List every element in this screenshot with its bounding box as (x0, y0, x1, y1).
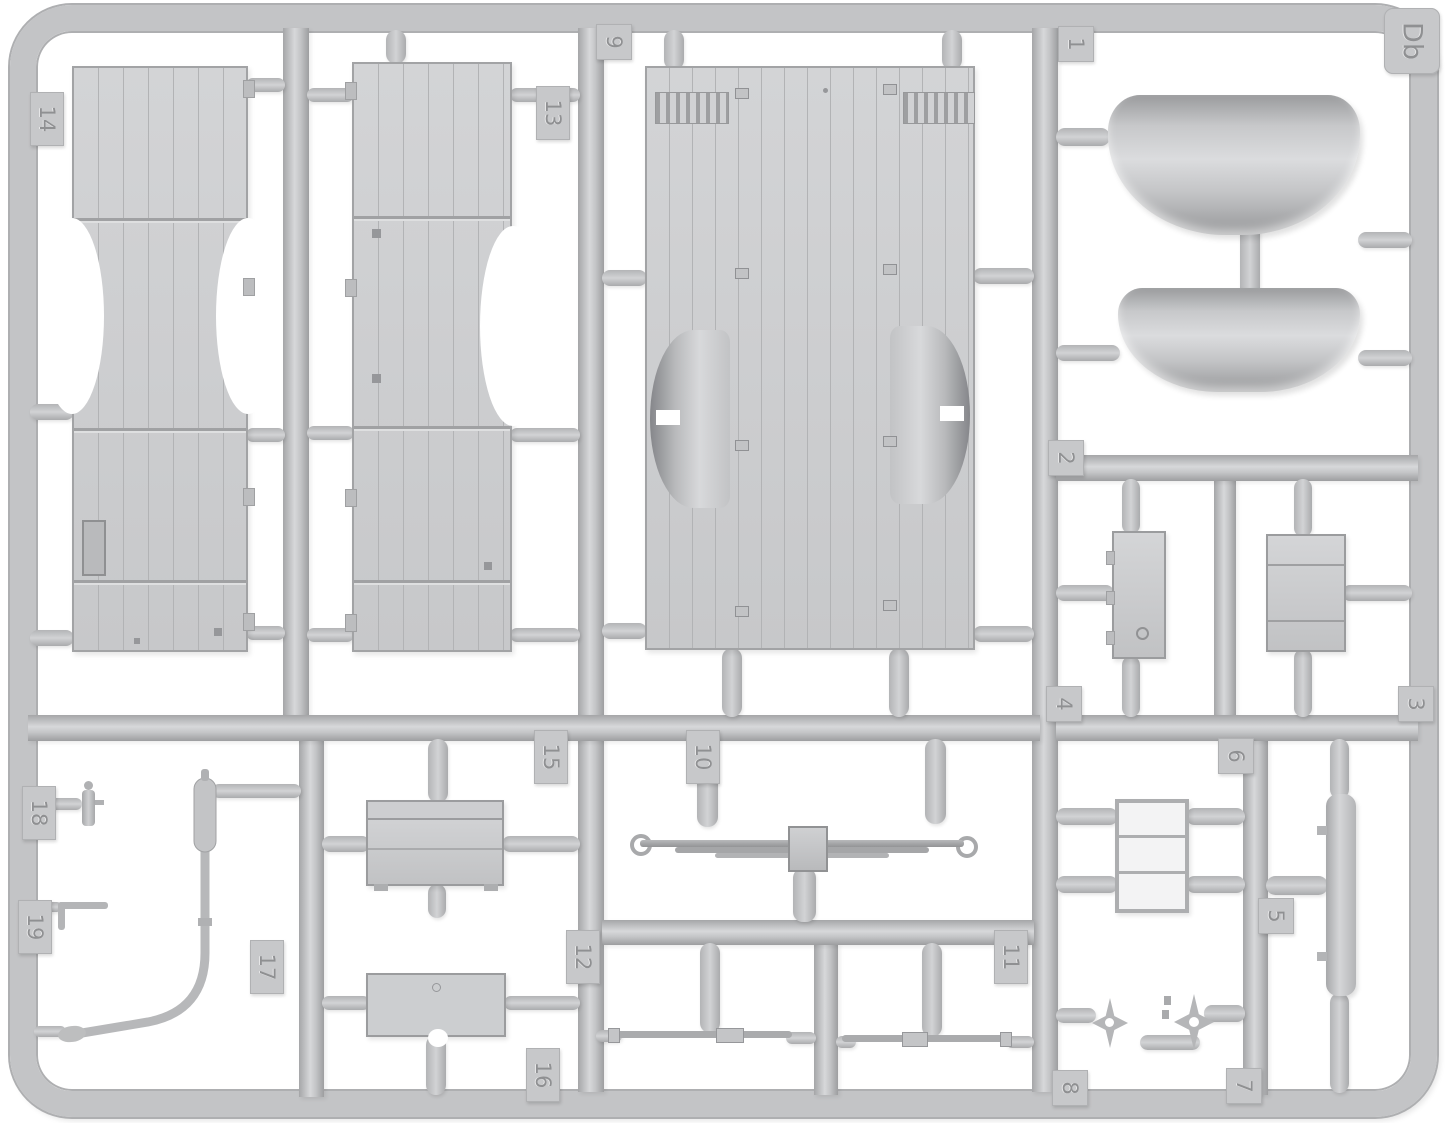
latch-plate (82, 520, 106, 576)
pipe-tip (57, 1024, 87, 1044)
sprue-gate (1056, 128, 1110, 146)
part-9-wooden-floor-panel (645, 66, 975, 650)
rod-end (1000, 1032, 1012, 1047)
hinge-bump (1106, 551, 1115, 565)
sprue-gate (386, 30, 406, 64)
sprue-gate (30, 630, 74, 646)
sprue-gate (1056, 345, 1120, 361)
hinge-tab (345, 82, 357, 100)
wheel-arch-part (650, 330, 730, 508)
hole-detail (484, 562, 492, 570)
part-number-tag-11: 11 (994, 930, 1028, 984)
plank-seam (354, 216, 510, 219)
sprue-gate (602, 623, 647, 639)
ladder-rung (1119, 835, 1185, 838)
runner-horizontal-4 (602, 920, 1034, 945)
part-14-wooden-side-panel (72, 66, 248, 652)
sprue-gate (1294, 479, 1312, 537)
part-number-tag-1: 1 (1058, 26, 1094, 62)
clip-detail (883, 600, 897, 611)
bracket-pin (1164, 996, 1171, 1005)
part-number-tag-4: 4 (1046, 686, 1082, 722)
runner-vertical-5 (814, 943, 838, 1095)
runner-horizontal-2 (1056, 455, 1418, 481)
runner-vertical-7 (1214, 479, 1236, 717)
arch-slot (656, 410, 680, 425)
part-number-tag-8: 8 (1052, 1070, 1088, 1106)
clip-detail (735, 440, 749, 451)
plank-seam (354, 580, 510, 583)
part-17-exhaust-pipe (40, 768, 310, 1058)
part-number-tag-19: 19 (18, 900, 52, 954)
sprue-photo: Db 1 2 3 4 5 6 7 8 9 10 11 12 13 14 15 1… (0, 0, 1445, 1123)
sprue-gate (889, 648, 909, 717)
sprue-gate (428, 884, 446, 918)
plank-line (1268, 620, 1344, 622)
sprue-letter: Db (1397, 22, 1428, 60)
plank-seam (74, 428, 246, 431)
sprue-gate (1330, 993, 1349, 1093)
part-number-tag-13: 13 (536, 86, 570, 140)
part-number-tag-2: 2 (1048, 440, 1084, 476)
wheel-arch-cutout (216, 218, 280, 414)
sprue-gate (1358, 232, 1412, 248)
clip-detail (883, 436, 897, 447)
sprue-gate (973, 626, 1034, 642)
sprue-gate (1056, 1008, 1096, 1023)
part-15-tool-box (366, 800, 504, 886)
box-rib (368, 848, 502, 850)
sprue-gate (1056, 808, 1118, 825)
sprue-gate (1358, 350, 1412, 366)
pipe-tube (76, 786, 205, 1034)
hinge-tab (243, 488, 255, 506)
part-13-wooden-side-panel (352, 62, 512, 652)
sprue-gate (510, 628, 580, 642)
bracket-hole (1189, 1017, 1199, 1027)
bolt-detail (823, 88, 828, 93)
plank-seam (74, 580, 246, 583)
part-12-tie-rod (608, 1028, 792, 1042)
pipe-bracket (198, 918, 212, 926)
ladder-rung (1119, 871, 1185, 874)
part-number-tag-6: 6 (1218, 738, 1254, 774)
clip-detail (735, 268, 749, 279)
sprue-gate (1330, 739, 1349, 799)
sprue-gate (700, 943, 720, 1033)
plank-seam (354, 426, 510, 429)
sprue-gate (246, 428, 285, 442)
mount-tab (1317, 826, 1327, 835)
part-number-tag-9: 9 (596, 24, 632, 60)
sprue-gate (428, 739, 448, 803)
sprue-gate (1342, 585, 1412, 601)
plank-line (1268, 564, 1344, 566)
clip-detail (883, 84, 897, 95)
part-16-flat-panel (366, 973, 506, 1037)
part-3-stowage-box (1266, 534, 1346, 652)
hinge-strip (655, 92, 729, 124)
hinge-tab (345, 489, 357, 507)
sprue-gate (1056, 876, 1118, 893)
sprue-gate (602, 270, 647, 286)
hole-detail (372, 229, 381, 238)
sprue-gate (1266, 876, 1328, 895)
sprue-gate (722, 648, 742, 717)
sprue-gate (793, 868, 816, 922)
sprue-gate (1122, 479, 1140, 534)
sprue-gate (925, 739, 946, 824)
sprue-gate (664, 30, 684, 70)
part-number-tag-18: 18 (22, 786, 56, 840)
sprue-gate (1294, 649, 1312, 717)
part-number-tag-15: 15 (534, 730, 568, 784)
part-number-tag-14: 14 (30, 92, 64, 146)
hinge-tab (345, 279, 357, 297)
latch-ring (1136, 627, 1149, 640)
hinge-bump (1106, 631, 1115, 645)
wheel-arch-part (890, 326, 970, 504)
part-5-long-slat (1326, 794, 1356, 996)
sprue-gate (922, 943, 942, 1037)
part-number-tag-3: 3 (1398, 686, 1434, 722)
part-4-stowage-box (1112, 531, 1166, 659)
rod-end (608, 1028, 620, 1043)
pipe-cap (201, 769, 209, 781)
hinge-tab (243, 613, 255, 631)
sprue-gate (502, 836, 580, 852)
mount-tab (1317, 952, 1327, 961)
sprue-gate (1186, 876, 1245, 893)
hole-detail (134, 638, 140, 644)
wheel-arch-cutout (40, 218, 104, 414)
clip-detail (735, 88, 749, 99)
part-number-tag-12: 12 (566, 930, 600, 984)
rod-sleeve (902, 1032, 928, 1047)
box-foot (374, 884, 388, 891)
hinge-tab (243, 278, 255, 296)
pipe-muffler (194, 778, 216, 852)
hinge-tab (243, 80, 255, 98)
bracket-hole (1105, 1018, 1114, 1027)
part-6-ladder-frame (1115, 799, 1189, 913)
sprue-gate (322, 996, 370, 1010)
runner-vertical-1 (283, 28, 309, 730)
part-10-leaf-spring-assembly (630, 824, 974, 876)
plank-seam (74, 218, 246, 221)
wheel-arch-cutout (480, 226, 546, 426)
part-number-tag-10: 10 (686, 730, 720, 784)
hinge-strip (903, 92, 975, 124)
sprue-gate (504, 996, 580, 1010)
runner-vertical-3 (1032, 28, 1058, 1092)
clip-detail (883, 264, 897, 275)
sprue-gate (1186, 808, 1245, 825)
box-foot (484, 884, 498, 891)
clip-detail (735, 606, 749, 617)
panel-notch (428, 1029, 448, 1047)
hole-detail (372, 374, 381, 383)
sprue-letter-tag: Db (1384, 8, 1440, 74)
bracket-pin (1162, 1010, 1169, 1019)
sprue-gate (1204, 1005, 1245, 1022)
part-11-tie-rod (842, 1032, 1010, 1046)
box-lid (368, 802, 502, 820)
sprue-gate (307, 426, 354, 440)
sprue-gate (942, 30, 962, 70)
part-number-tag-16: 16 (526, 1048, 560, 1102)
arch-slot (940, 406, 964, 421)
part-number-tag-7: 7 (1226, 1068, 1262, 1104)
sprue-gate (322, 836, 370, 852)
hole-detail (214, 628, 222, 636)
axle-mount-box (788, 826, 828, 872)
hinge-bump (1106, 591, 1115, 605)
part-number-tag-5: 5 (1258, 898, 1294, 934)
sprue-gate (973, 268, 1034, 284)
hinge-tab (345, 614, 357, 632)
rod-bar (608, 1031, 792, 1038)
part-number-tag-17: 17 (250, 940, 284, 994)
sprue-gate (1122, 656, 1140, 717)
panel-hole (432, 983, 441, 992)
sprue-gate (510, 428, 580, 442)
rod-sleeve (716, 1028, 744, 1043)
